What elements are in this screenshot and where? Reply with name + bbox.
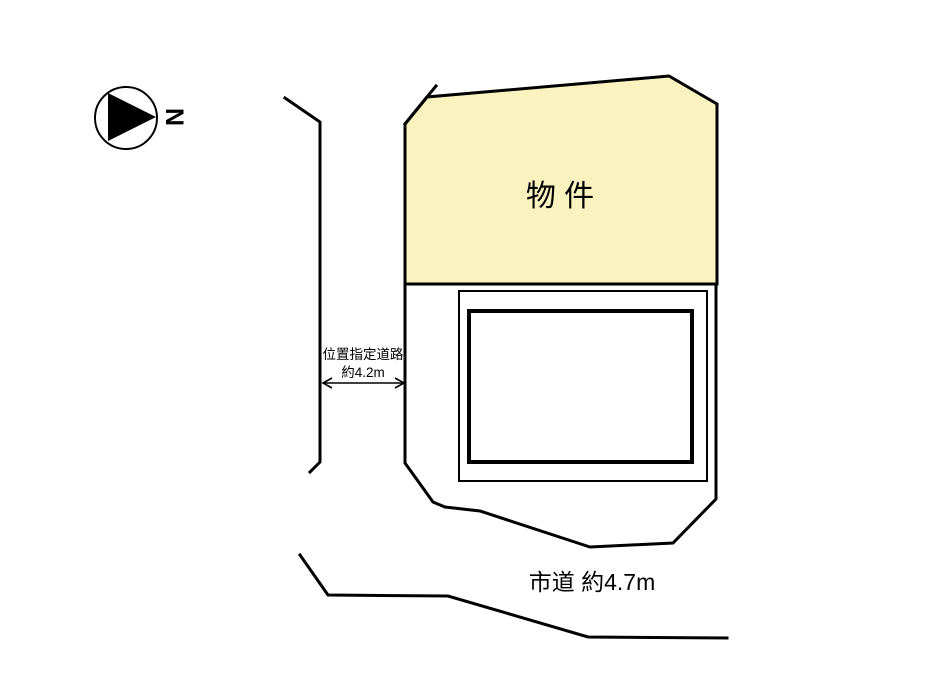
north-label: N — [160, 108, 188, 126]
city-road: 市道 約4.7m — [300, 555, 727, 638]
lower-parcel — [405, 284, 716, 547]
road-width-dimension: 位置指定道路 約4.2m — [323, 347, 405, 388]
city-road-boundary-line — [300, 555, 727, 638]
land-plot-diagram: N 物 件 位置指定道路 約4.2m 市道 約4.7m — [0, 0, 947, 681]
designated-road-boundary-line — [285, 98, 320, 472]
north-compass: N — [95, 87, 188, 149]
building-inner-outline — [469, 311, 692, 462]
city-road-label: 市道 約4.7m — [529, 569, 656, 595]
designated-road-name-label: 位置指定道路 — [323, 347, 404, 362]
property-parcel: 物 件 — [405, 76, 717, 284]
property-label: 物 件 — [526, 180, 594, 213]
designated-road-width-label: 約4.2m — [341, 365, 385, 380]
plot-map-page: N 物 件 位置指定道路 約4.2m 市道 約4.7m — [0, 0, 947, 681]
